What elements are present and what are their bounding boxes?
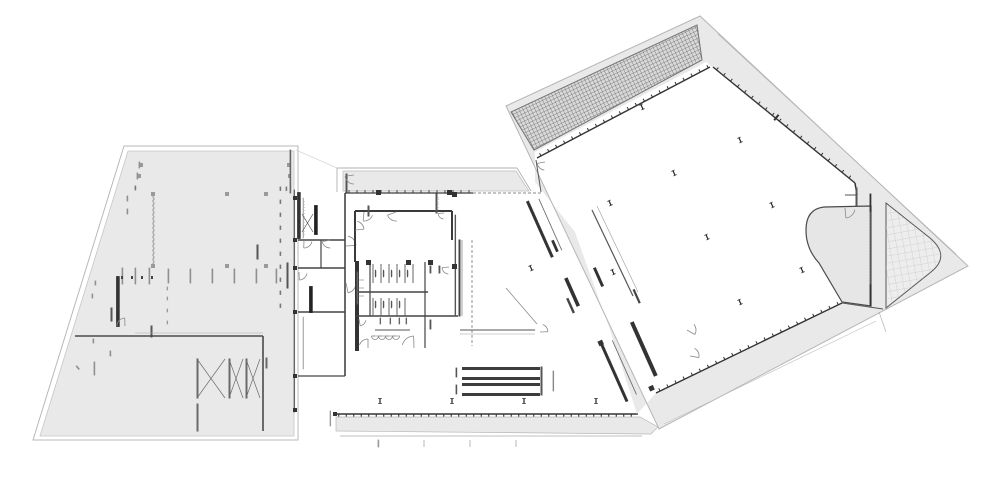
floor-plan-canvas	[0, 0, 1000, 490]
vent-bar-end	[140, 163, 143, 167]
sink-counter	[380, 318, 381, 324]
column-symbol	[704, 234, 709, 240]
plan-layers	[33, 16, 968, 447]
column-marker	[452, 192, 457, 197]
roof-strip	[167, 287, 168, 290]
column-marker	[293, 374, 297, 378]
janitor-box	[430, 320, 431, 329]
column-marker	[376, 190, 381, 195]
skylight-corner-marker	[264, 192, 268, 196]
hall-vestibule	[368, 206, 369, 216]
curved-room	[806, 206, 871, 306]
roof-slat-vertical	[276, 269, 277, 283]
roof-vent-bar	[137, 173, 138, 179]
plant-room	[117, 277, 119, 326]
column-marker	[452, 264, 457, 269]
column-marker	[293, 196, 297, 200]
escalator-pit	[541, 367, 542, 395]
column-dot	[280, 187, 281, 191]
fire-stair-run	[870, 212, 871, 285]
wall-tick	[121, 276, 123, 279]
terrace-vestibule	[346, 174, 347, 192]
floor-plan-page	[0, 0, 1000, 490]
core-west-wall	[294, 190, 295, 412]
courtyard-skylight	[153, 194, 154, 267]
escalator-landing	[456, 368, 457, 377]
wall-tick	[141, 276, 143, 279]
column-dot	[280, 200, 281, 204]
roof-fixture	[94, 362, 95, 375]
roof-slat-vertical	[212, 269, 213, 283]
toilet	[407, 270, 408, 277]
elevator-shaft	[315, 206, 317, 234]
roof-strip	[167, 309, 168, 312]
party-wall	[290, 150, 291, 193]
escalator-rail	[462, 383, 540, 386]
roof-vent-bar	[139, 162, 140, 168]
column-symbol	[799, 267, 804, 273]
escalator-rail	[462, 367, 540, 370]
roof-slat	[127, 196, 128, 201]
column-marker	[406, 260, 411, 265]
column-dot	[280, 239, 281, 243]
shaft-skylight	[246, 359, 247, 398]
terrace-inner-edge	[664, 321, 876, 424]
skylight-corner-marker	[151, 264, 155, 268]
stair-core-a	[298, 193, 300, 238]
skylight-corner-marker	[264, 264, 268, 268]
column-marker	[293, 238, 297, 242]
window-strip	[459, 240, 460, 316]
shaft-skylight	[197, 359, 198, 398]
column-dot	[280, 213, 281, 217]
column-dot	[135, 186, 136, 190]
north-terrace	[343, 171, 529, 191]
shaft-skylight	[229, 359, 230, 398]
terrace-divider	[879, 312, 886, 332]
skylight-corner-marker	[225, 192, 229, 196]
column-marker	[293, 310, 297, 314]
roof-fixture	[93, 339, 94, 343]
stair-bay	[436, 194, 437, 213]
toilet	[399, 301, 400, 308]
escalator-pit-outer	[553, 371, 554, 391]
skylight-edge-box	[257, 245, 258, 259]
roof-strip	[167, 297, 168, 300]
column-marker	[366, 260, 371, 265]
roof-slat	[127, 209, 128, 214]
vent-bar-end	[138, 174, 141, 178]
column-symbol	[737, 299, 742, 305]
door-swing	[687, 324, 696, 334]
column-dot	[280, 291, 281, 295]
roof-hatch	[197, 404, 198, 431]
column-marker	[293, 408, 297, 412]
toilet	[383, 270, 384, 277]
sink-counter	[390, 318, 391, 324]
roof-slat-vertical	[168, 269, 169, 283]
column-marker	[447, 190, 452, 195]
roof-slat-vertical	[135, 268, 136, 284]
urinal	[430, 266, 431, 273]
column-symbol	[639, 104, 644, 110]
skylight-corner-marker	[151, 192, 155, 196]
roof-slat-vertical	[149, 268, 150, 284]
facade-end-post	[333, 412, 337, 416]
sink-counter	[406, 318, 407, 324]
east-hall-east-facade	[713, 67, 855, 183]
door-swing	[690, 348, 699, 357]
roof-slat-vertical	[234, 269, 235, 283]
column-symbol	[737, 137, 742, 143]
column-dot	[280, 265, 281, 269]
roof-strip	[167, 321, 168, 324]
facade-corner-box	[330, 411, 331, 426]
column-symbol	[769, 202, 774, 208]
column-dot	[280, 252, 281, 256]
equipment-box	[111, 308, 112, 321]
escalator-rail	[462, 393, 540, 396]
roof-fixture	[92, 294, 93, 298]
column-dot	[280, 226, 281, 230]
toilet	[375, 301, 376, 308]
column-marker	[428, 260, 433, 265]
column-dot	[280, 304, 281, 308]
urinal	[439, 266, 440, 273]
central-interior-ground	[296, 148, 688, 440]
wall-tick	[131, 276, 133, 279]
toilet	[375, 270, 376, 277]
entry-steps	[378, 440, 379, 447]
roof-slat-vertical	[256, 269, 257, 283]
toilet	[391, 270, 392, 277]
column-dot	[280, 278, 281, 282]
service-shaft	[310, 287, 312, 312]
south-terrace	[336, 417, 658, 434]
toilet	[399, 270, 400, 277]
toilet	[383, 301, 384, 308]
skylight-corner-marker	[225, 264, 229, 268]
waffle-roof-band-grid	[511, 25, 702, 150]
sink-counter	[399, 318, 400, 324]
room-inner-outline	[303, 317, 304, 369]
escalator-landing	[456, 385, 457, 394]
column-marker	[293, 266, 297, 270]
wall-tick	[151, 276, 153, 279]
stair-inner-outline	[303, 198, 304, 238]
roof-slat-vertical	[190, 269, 191, 283]
column-dot	[286, 187, 287, 191]
roof-fixture	[110, 351, 111, 356]
escalator-rail	[462, 377, 540, 380]
toilet	[391, 301, 392, 308]
roof-fixture	[95, 281, 96, 285]
vent-bar-end	[287, 163, 290, 167]
roof-hatch-small	[266, 358, 267, 368]
